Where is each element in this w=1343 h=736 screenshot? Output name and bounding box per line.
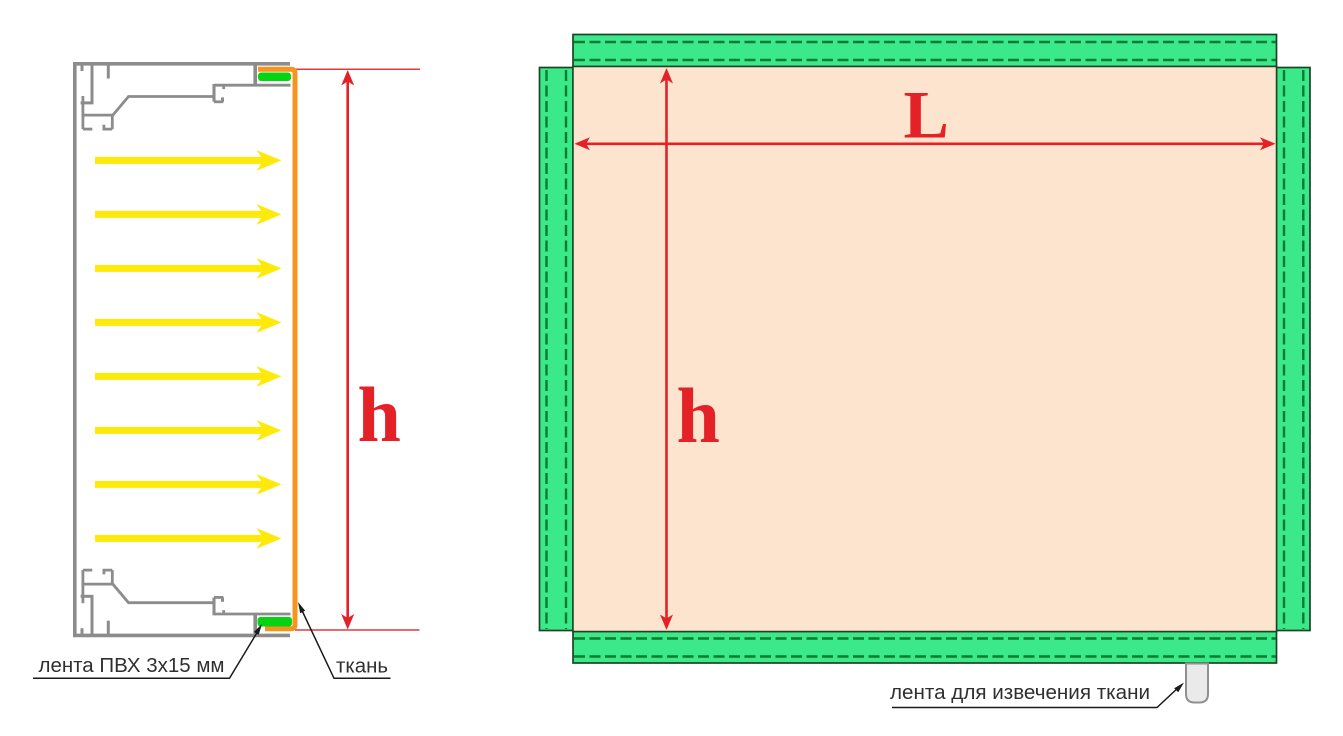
svg-text:h: h bbox=[358, 371, 401, 458]
svg-text:ткань: ткань bbox=[336, 656, 388, 678]
svg-text:лента для извечения ткани: лента для извечения ткани bbox=[890, 682, 1150, 704]
svg-text:L: L bbox=[904, 77, 949, 153]
svg-text:h: h bbox=[677, 372, 720, 459]
svg-text:лента ПВХ 3х15 мм: лента ПВХ 3х15 мм bbox=[39, 655, 225, 677]
